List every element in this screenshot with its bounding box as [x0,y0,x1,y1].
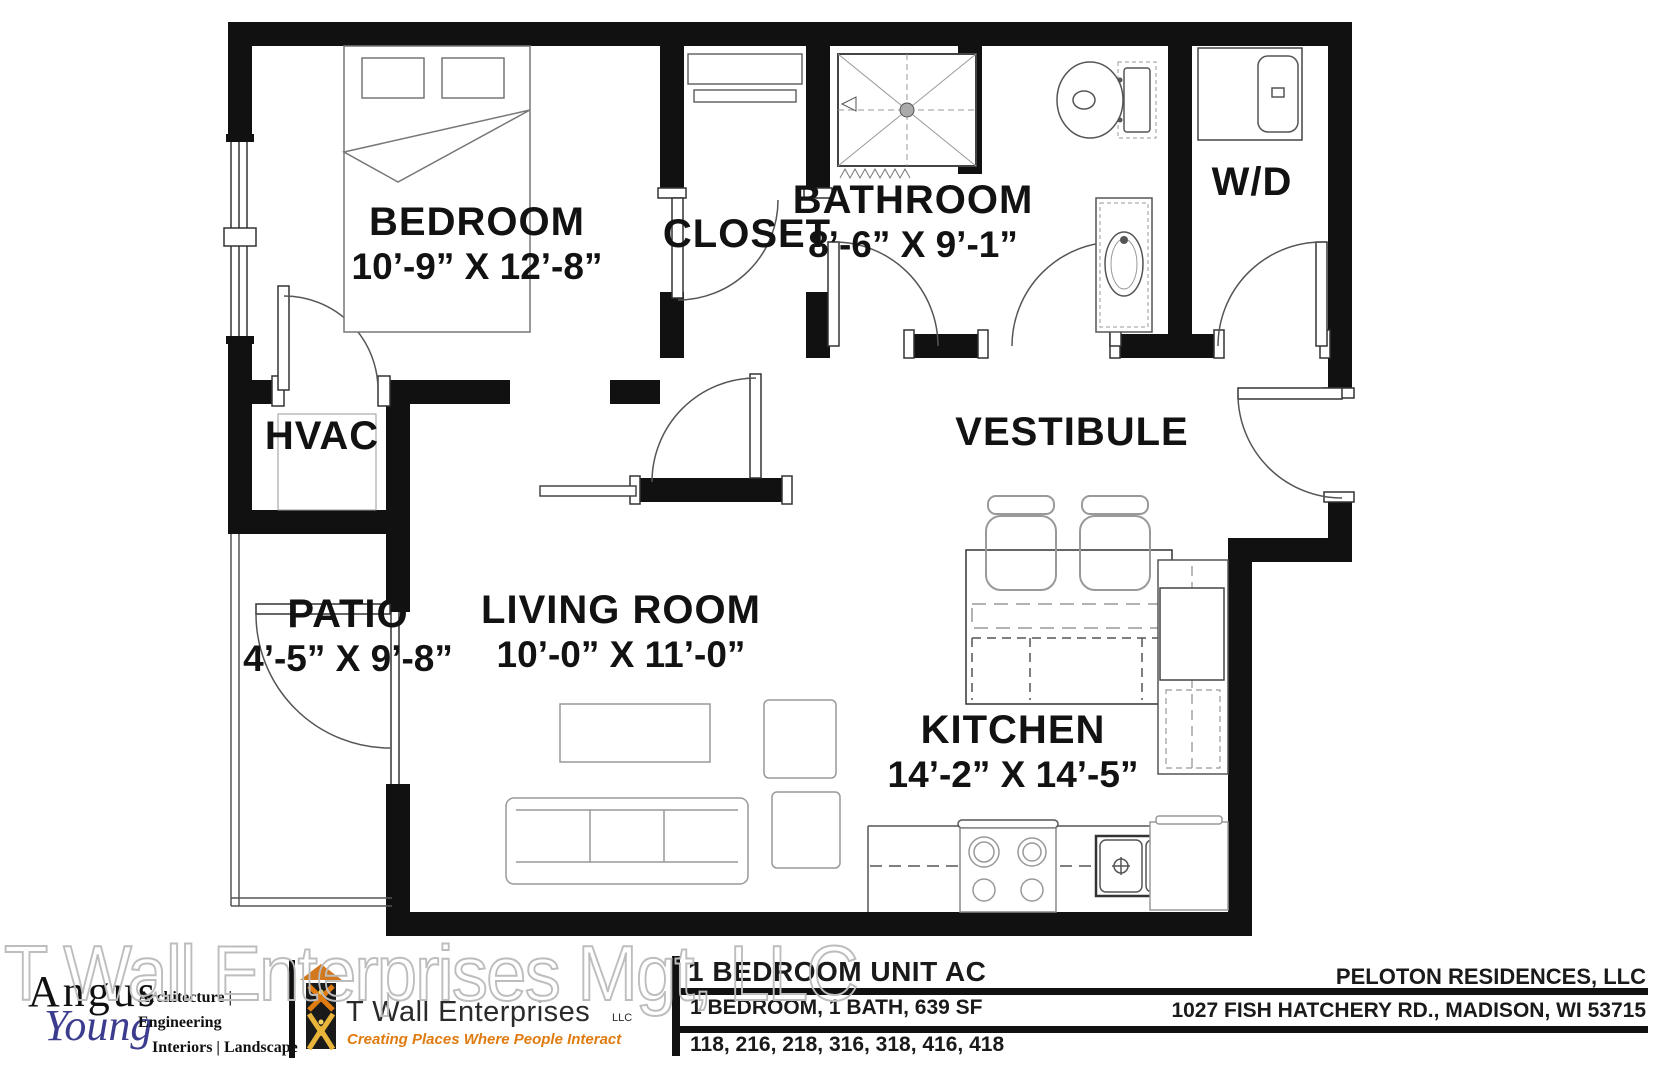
washer-dryer-unit [1198,48,1302,140]
unit-title: 1 BEDROOM UNIT AC [688,956,986,988]
twall-logo-icon [300,964,342,1054]
refrigerator [1150,816,1228,910]
bathroom-dims: 8’-6” X 9’-1” [793,224,1034,266]
room-label-bathroom: BATHROOM 8’-6” X 9’-1” [793,178,1034,266]
bathroom-name: BATHROOM [793,178,1034,224]
living-room-dims: 10’-0” X 11’-0” [481,634,761,676]
coffee-table [560,704,710,762]
patio-railing [231,534,392,906]
room-label-hvac: HVAC [265,414,379,460]
title-block-divider [672,956,680,1056]
vestibule-name: VESTIBULE [955,410,1188,456]
floor-plan-drawing [0,0,1669,1080]
architect-services: Architecture | Engineering Interiors | L… [138,986,308,1060]
hvac-name: HVAC [265,414,379,460]
owner-address: 1027 FISH HATCHERY RD., MADISON, WI 5371… [1100,999,1646,1023]
door-washer-dryer [1218,242,1327,346]
owner-name: PELOTON RESIDENCES, LLC [1100,964,1646,990]
kitchen-island [966,550,1172,704]
title-block-rule [289,960,295,1058]
room-label-kitchen: KITCHEN 14’-2” X 14’-5” [888,708,1139,796]
kitchen-dims: 14’-2” X 14’-5” [888,754,1139,796]
unit-specs: 1 BEDROOM, 1 BATH, 639 SF [690,996,983,1020]
armchair [764,700,840,868]
bedroom-dims: 10’-9” X 12’-8” [352,246,603,288]
unit-numbers: 118, 216, 218, 316, 318, 416, 418 [690,1033,1004,1057]
kitchen-name: KITCHEN [888,708,1139,754]
bedroom-window [224,134,256,344]
door-entry [1238,388,1342,498]
range [958,820,1058,912]
title-block-bar-1 [680,988,1648,995]
toilet [1057,62,1156,138]
developer-logo-suffix: LLC [612,1012,632,1024]
title-block-bar-2 [680,1026,1648,1033]
bedroom-name: BEDROOM [352,200,603,246]
developer-tagline: Creating Places Where People Interact [347,1031,621,1048]
architect-services-line1: Architecture | Engineering [138,986,308,1036]
developer-logo-name: T Wall Enterprises [346,996,590,1029]
room-label-patio: PATIO 4’-5” X 9’-8” [243,592,453,680]
architect-logo-line2: Young [44,1000,152,1051]
sofa [506,798,748,884]
shower [838,54,976,178]
floor-plan-page: BEDROOM 10’-9” X 12’-8” CLOSET BATHROOM … [0,0,1669,1080]
living-room-name: LIVING ROOM [481,588,761,634]
patio-name: PATIO [243,592,453,638]
closet-shelving [688,54,802,102]
room-label-bedroom: BEDROOM 10’-9” X 12’-8” [352,200,603,288]
room-label-vestibule: VESTIBULE [955,410,1188,456]
bathroom-vanity [1096,198,1152,332]
door-hall-living [652,374,761,482]
door-bedroom-pocket [540,486,636,496]
patio-dims: 4’-5” X 9’-8” [243,638,453,680]
architect-services-line2: Interiors | Landscape [138,1036,308,1061]
room-label-washer-dryer: W/D [1212,160,1293,206]
washer-dryer-name: W/D [1212,160,1293,206]
bed [344,46,530,332]
room-label-living-room: LIVING ROOM 10’-0” X 11’-0” [481,588,761,676]
